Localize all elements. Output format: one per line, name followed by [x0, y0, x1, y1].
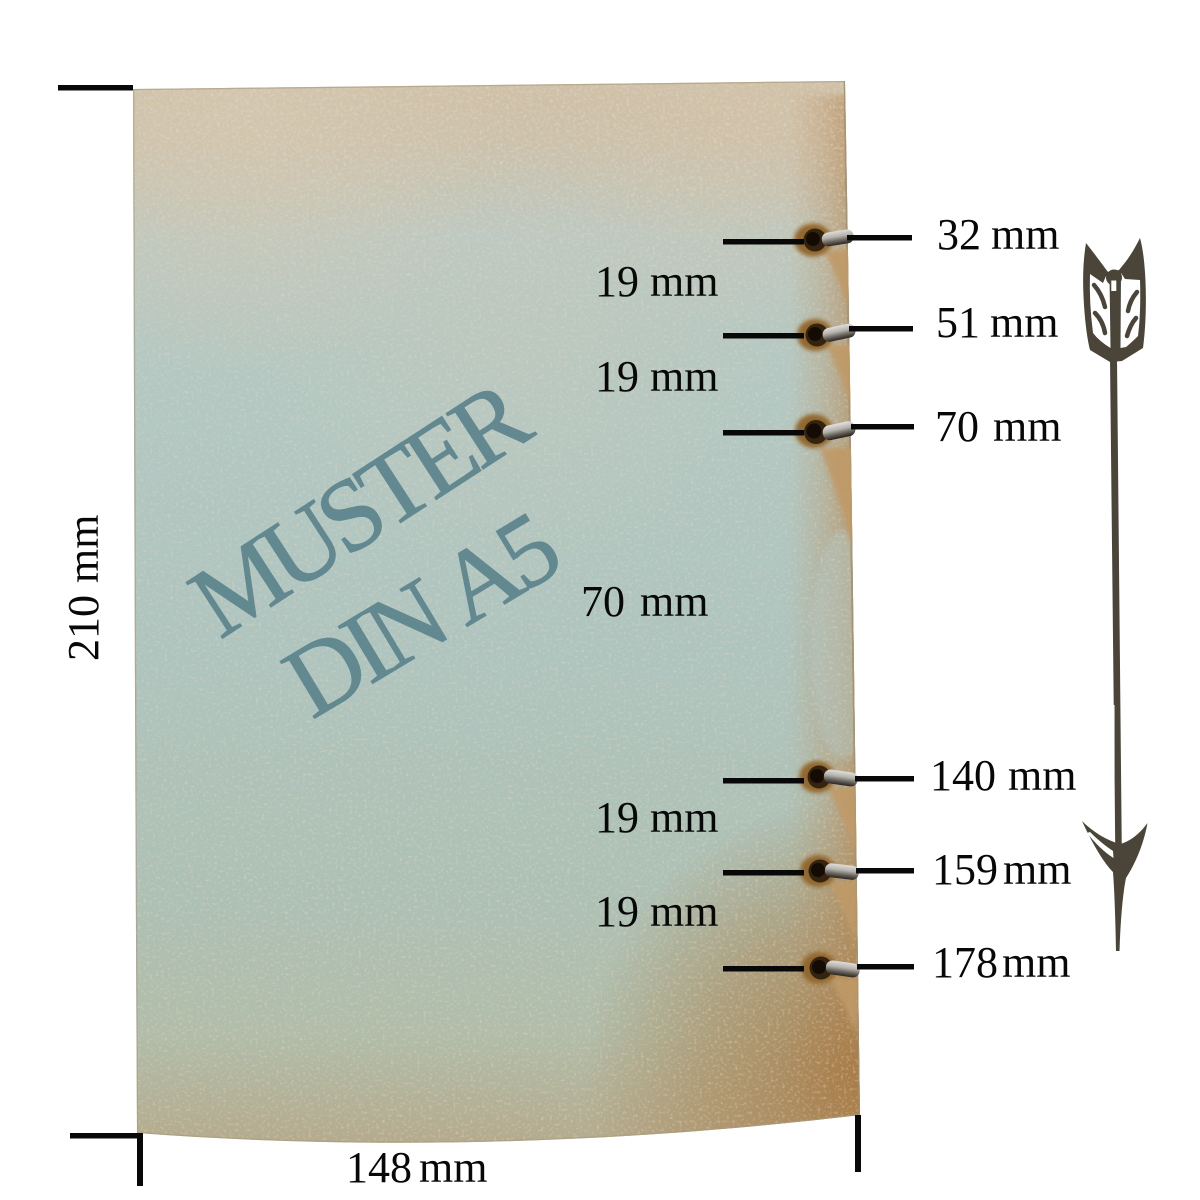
svg-text:32mm: 32mm: [937, 210, 1059, 259]
svg-text:19mm: 19mm: [595, 352, 718, 401]
svg-text:178mm: 178mm: [932, 938, 1070, 987]
svg-text:19mm: 19mm: [595, 793, 718, 842]
svg-text:70mm: 70mm: [935, 402, 1061, 451]
svg-text:70mm: 70mm: [581, 577, 708, 626]
svg-text:19mm: 19mm: [595, 887, 718, 936]
svg-text:19mm: 19mm: [595, 257, 718, 306]
svg-text:51mm: 51mm: [936, 298, 1058, 347]
